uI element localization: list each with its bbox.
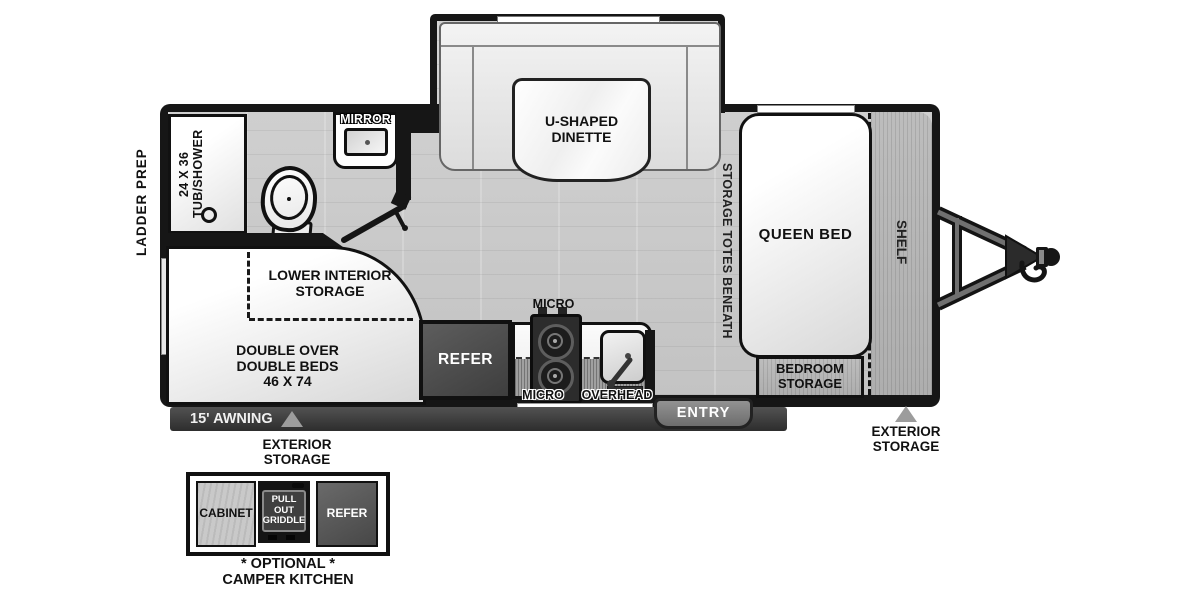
faucet-icon [607, 360, 630, 388]
overlay-graphics [0, 0, 1200, 600]
bathroom-door-icon [344, 206, 408, 240]
floorplan-canvas: U-SHAPED DINETTE 24 X 36 TUB/SHOWER MIRR… [0, 0, 1200, 600]
hitch-icon [938, 212, 1060, 305]
